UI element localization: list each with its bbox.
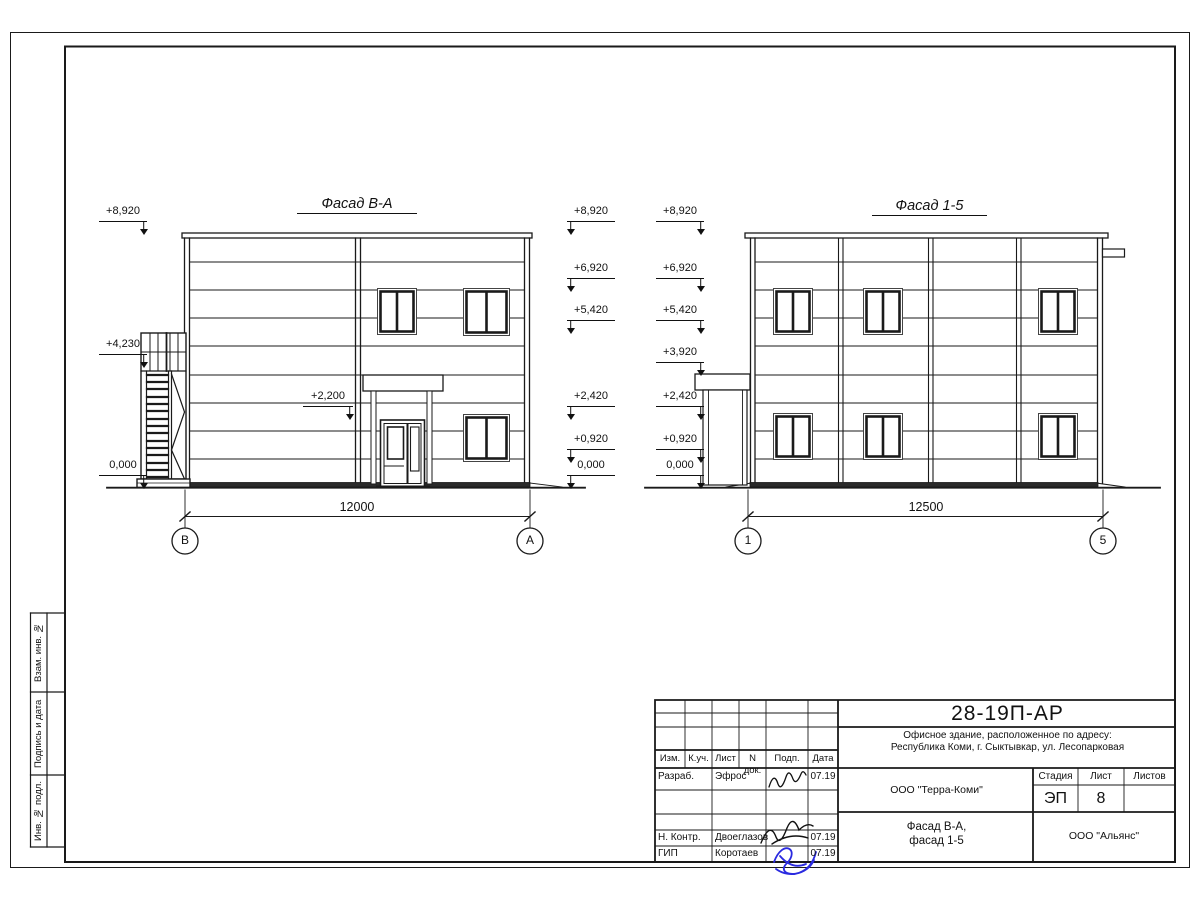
elevation-mark: +2,420 [656, 389, 704, 407]
project-address-line1: Офисное здание, расположенное по адресу: [845, 730, 1170, 742]
axis-bubble-label: 5 [1090, 533, 1116, 547]
elevation-mark-label: +6,920 [574, 262, 608, 274]
side-stamp-label: Инв. № подл. [30, 775, 47, 847]
roof-drain-pipe [1103, 249, 1125, 257]
sheets-label: Листов [1124, 771, 1175, 783]
sheet-title-line1: Фасад В-А, [840, 821, 1033, 833]
tb-col-data: Дата [808, 753, 838, 765]
elevation-mark: 0,000 [99, 458, 147, 476]
drawing-canvas [0, 0, 1200, 900]
sheet-label: Лист [1078, 771, 1124, 783]
elevation-arrow-icon [696, 362, 705, 376]
entrance-door [377, 420, 429, 487]
stage-value: ЭП [1033, 786, 1078, 812]
elevation-arrow-icon [696, 320, 705, 334]
elevation-mark-label: 0,000 [577, 459, 605, 471]
elevation-mark: +8,920 [567, 204, 615, 222]
elevation-mark-label: +3,920 [663, 346, 697, 358]
elevation-arrow-icon [566, 475, 575, 489]
elevation-mark: +2,200 [303, 389, 353, 407]
tb-date: 07.19 [808, 848, 838, 860]
elevation-mark: +8,920 [99, 204, 147, 222]
elevation-arrow-icon [566, 221, 575, 235]
window [774, 289, 1078, 460]
axis-bubble-label: 1 [735, 533, 761, 547]
elevation-mark: +0,920 [656, 432, 704, 450]
elevation-mark: +6,920 [656, 261, 704, 279]
side-stamp-label: Взам. инв. № [30, 613, 47, 692]
elevation-mark-label: +8,920 [574, 205, 608, 217]
elevation-arrow-icon [696, 278, 705, 292]
elevation-mark-label: +0,920 [663, 433, 697, 445]
elevation-mark: +6,920 [567, 261, 615, 279]
elevation-mark-label: +6,920 [663, 262, 697, 274]
elevation-arrow-icon [139, 475, 148, 489]
elevation-arrow-icon [696, 221, 705, 235]
elevation-mark-label: 0,000 [666, 459, 694, 471]
elevation-mark-label: +2,420 [574, 390, 608, 402]
elevation-arrow-icon [139, 221, 148, 235]
elevation-mark: 0,000 [567, 458, 615, 476]
tb-col-podp: Подп. [766, 753, 808, 765]
drawing-sheet: Фасад В-А Фасад 1-5 12000 12500 В А 1 5 … [0, 0, 1200, 900]
elevation-arrow-icon [566, 406, 575, 420]
elevation-mark-label: +5,420 [663, 304, 697, 316]
elevation-mark-label: +2,420 [663, 390, 697, 402]
client-name: ООО "Терра-Коми" [840, 784, 1033, 796]
elevation-mark-label: +0,920 [574, 433, 608, 445]
elevation-mark: +8,920 [656, 204, 704, 222]
elevation-mark-label: +5,420 [574, 304, 608, 316]
sheet-title-line2: фасад 1-5 [840, 835, 1033, 847]
elevation-arrow-icon [566, 278, 575, 292]
elevation-mark: 0,000 [656, 458, 704, 476]
axis-bubble-label: А [517, 533, 543, 547]
project-address-line2: Республика Коми, г. Сыктывкар, ул. Лесоп… [845, 742, 1170, 754]
elevation-mark: +0,920 [567, 432, 615, 450]
tb-col-izm: Изм. [655, 753, 685, 765]
tb-col-list: Лист [712, 753, 739, 765]
elevation-mark: +4,230 [99, 337, 147, 355]
elevation-arrow-icon [696, 406, 705, 420]
elevation-mark-label: +4,230 [106, 338, 140, 350]
elevation-mark: +2,420 [567, 389, 615, 407]
elevation-mark-label: +8,920 [106, 205, 140, 217]
elevation-mark: +5,420 [567, 303, 615, 321]
facade-1-5-title: Фасад 1-5 [872, 198, 987, 216]
doc-number: 28-19П-АР [840, 701, 1175, 727]
axis-bubble-label: В [172, 533, 198, 547]
dimension-label: 12000 [307, 500, 407, 514]
elevation-arrow-icon [696, 475, 705, 489]
elevation-arrow-icon [345, 406, 354, 420]
tb-role: Разраб. [658, 771, 711, 783]
dimension-label: 12500 [876, 500, 976, 514]
tb-col-kuch: К.уч. [685, 753, 712, 765]
tb-date: 07.19 [808, 832, 838, 844]
tb-role: ГИП [658, 848, 711, 860]
tb-role: Н. Контр. [658, 832, 711, 844]
tb-name: Двоеглазов [715, 832, 768, 844]
tb-date: 07.19 [808, 771, 838, 783]
elevation-mark: +5,420 [656, 303, 704, 321]
sheet-value: 8 [1078, 786, 1124, 812]
contractor-name: ООО "Альянс" [1033, 830, 1175, 842]
elevation-mark-label: +8,920 [663, 205, 697, 217]
tb-name: Коротаев [715, 848, 768, 860]
elevation-mark-label: +2,200 [311, 390, 345, 402]
stage-label: Стадия [1033, 771, 1078, 783]
elevation-arrow-icon [566, 320, 575, 334]
facade-b-a-drawing [107, 233, 585, 488]
side-stamp-label: Подпись и дата [30, 692, 47, 775]
tb-name: Эфрос [715, 771, 765, 783]
elevation-arrow-icon [139, 354, 148, 368]
elevation-mark: +3,920 [656, 345, 704, 363]
facade-b-a-title: Фасад В-А [297, 196, 417, 214]
elevation-mark-label: 0,000 [109, 459, 137, 471]
facade-1-5-drawing [645, 233, 1160, 488]
